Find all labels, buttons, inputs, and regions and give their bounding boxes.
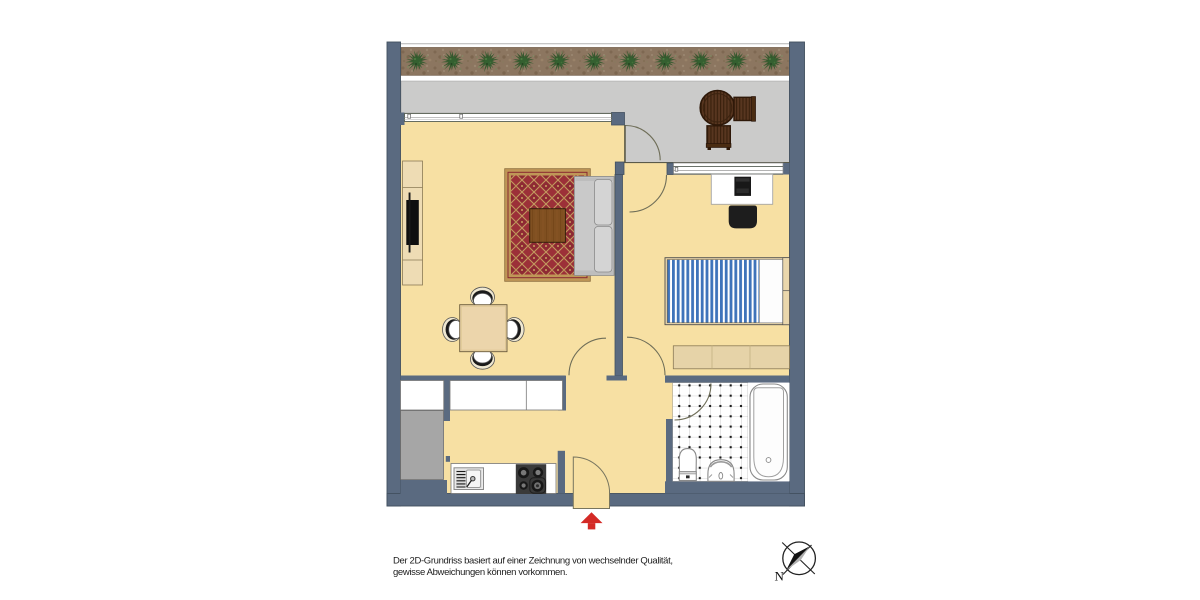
svg-text:N: N (775, 569, 785, 584)
svg-text:gewisse Abweichungen können vo: gewisse Abweichungen können vorkommen. (393, 567, 567, 578)
svg-text:Der 2D-Grundriss basiert auf e: Der 2D-Grundriss basiert auf einer Zeich… (393, 556, 673, 567)
